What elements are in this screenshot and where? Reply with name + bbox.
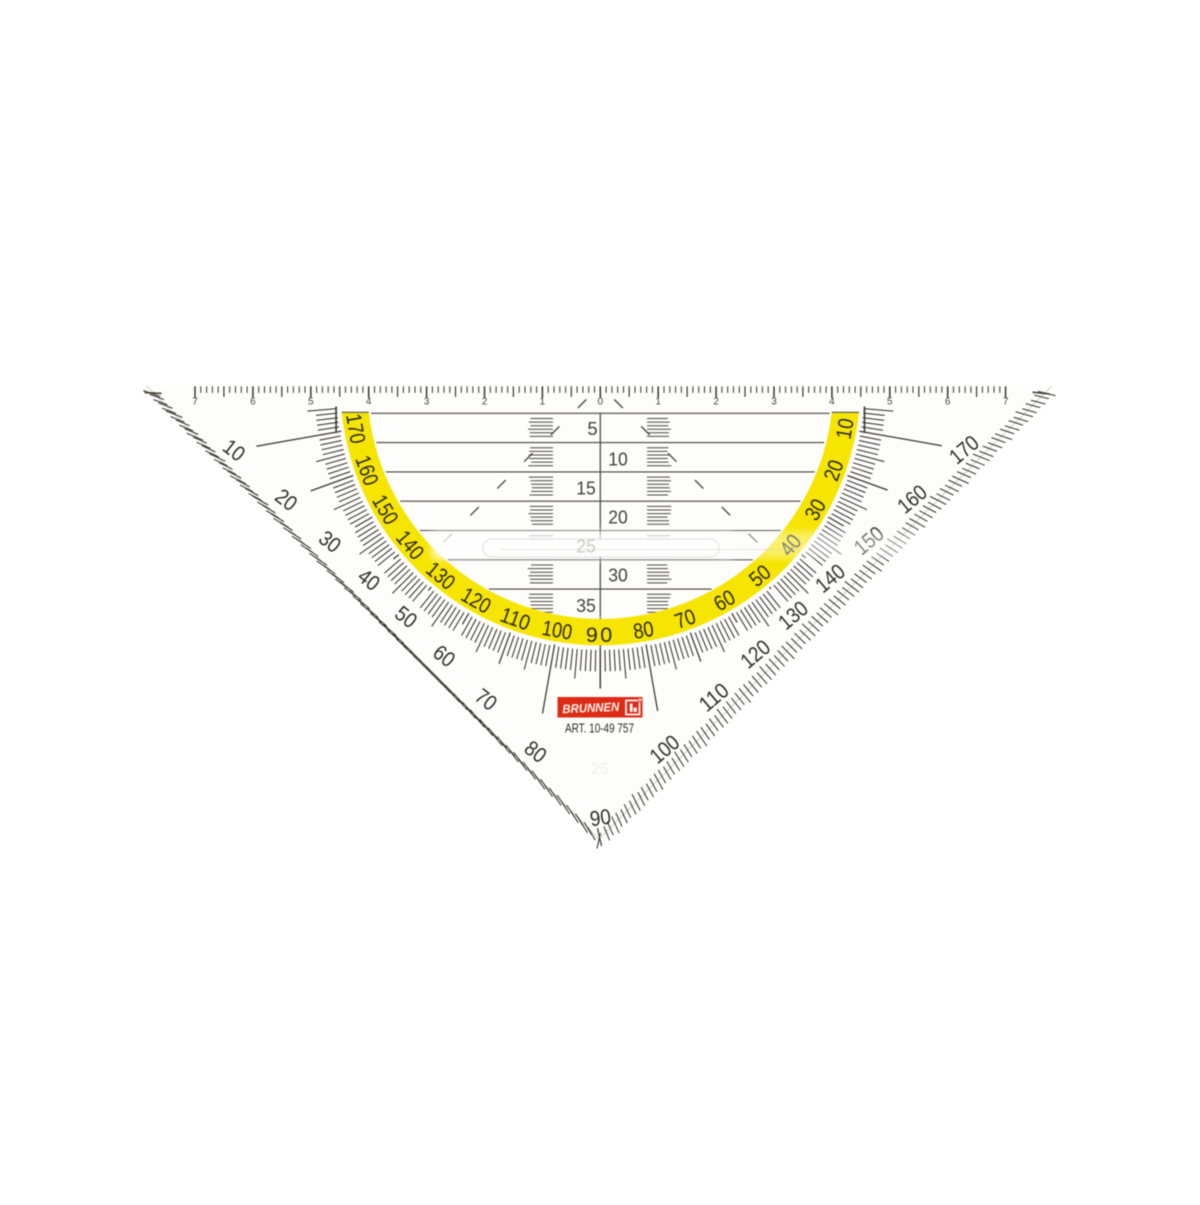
svg-text:90: 90 xyxy=(586,623,615,647)
svg-text:0: 0 xyxy=(598,397,604,408)
svg-text:7: 7 xyxy=(192,397,198,408)
svg-text:25: 25 xyxy=(591,761,609,778)
svg-text:BRUNNEN: BRUNNEN xyxy=(562,700,621,717)
svg-text:ART. 10-49 757: ART. 10-49 757 xyxy=(565,722,634,736)
svg-text:90: 90 xyxy=(588,805,612,832)
svg-text:170: 170 xyxy=(341,412,370,446)
svg-text:2: 2 xyxy=(713,397,719,408)
svg-text:1: 1 xyxy=(655,397,661,408)
svg-text:7: 7 xyxy=(1003,397,1009,408)
svg-text:10: 10 xyxy=(832,416,859,440)
svg-text:4: 4 xyxy=(366,397,372,408)
svg-text:35: 35 xyxy=(576,595,596,616)
svg-text:30: 30 xyxy=(608,565,628,586)
svg-text:3: 3 xyxy=(771,397,777,408)
svg-text:25: 25 xyxy=(576,536,596,557)
svg-text:80: 80 xyxy=(631,617,655,644)
svg-text:6: 6 xyxy=(250,397,256,408)
svg-text:5: 5 xyxy=(308,397,314,408)
svg-text:2: 2 xyxy=(482,397,488,408)
svg-text:100: 100 xyxy=(540,616,574,645)
svg-text:5: 5 xyxy=(887,397,893,408)
svg-text:5: 5 xyxy=(587,418,597,439)
svg-text:15: 15 xyxy=(576,478,596,499)
svg-text:10: 10 xyxy=(608,449,628,470)
svg-text:4: 4 xyxy=(829,397,835,408)
svg-text:1: 1 xyxy=(540,397,546,408)
svg-text:20: 20 xyxy=(608,507,628,528)
svg-text:3: 3 xyxy=(424,397,430,408)
svg-text:6: 6 xyxy=(945,397,951,408)
